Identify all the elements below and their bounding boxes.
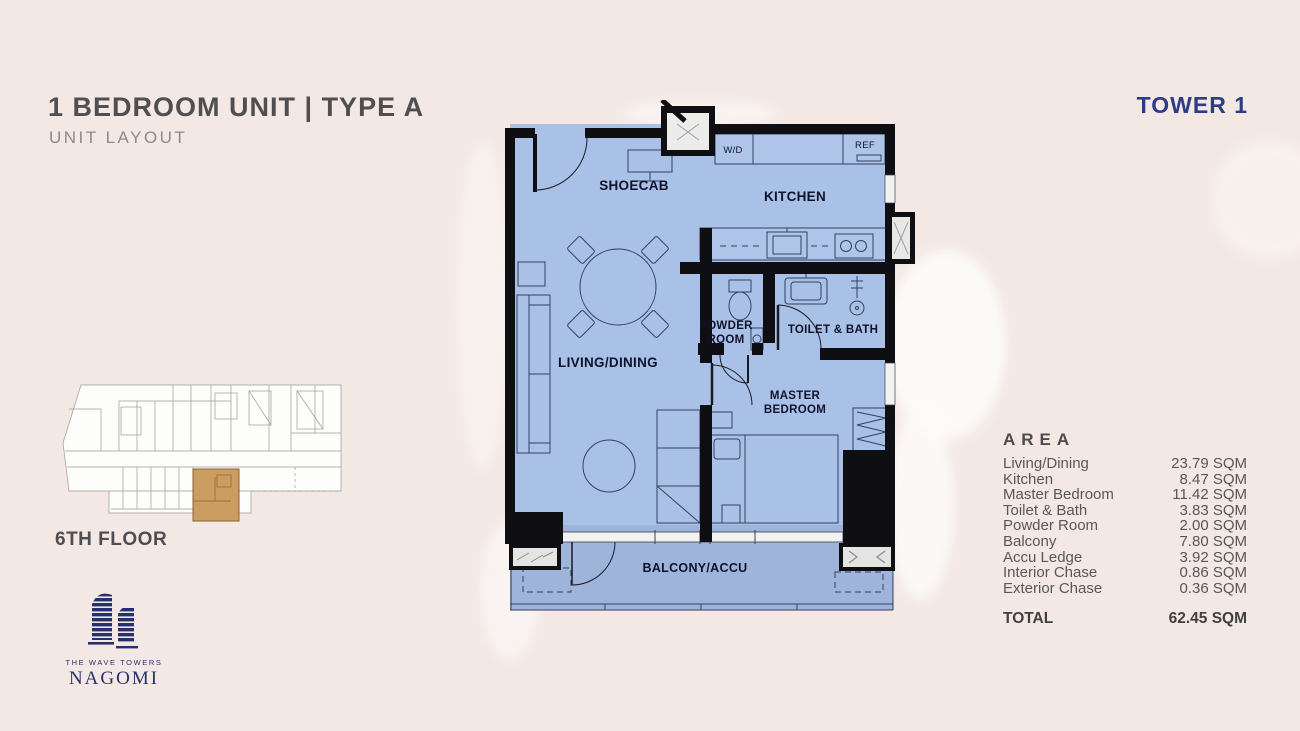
area-row-value: 0.36 SQM [1179,581,1247,597]
area-row: Accu Ledge3.92 SQM [1003,550,1247,566]
area-row: Interior Chase0.86 SQM [1003,565,1247,581]
area-row: Kitchen8.47 SQM [1003,472,1247,488]
area-row-value: 3.83 SQM [1179,503,1247,519]
floor-label: 6TH FLOOR [55,529,167,551]
area-total-label: TOTAL [1003,610,1053,628]
area-row-label: Accu Ledge [1003,550,1082,566]
room-label-shoecab: SHOECAB [599,178,669,193]
room-label-toilet-bath: TOILET & BATH [788,324,878,336]
area-row-value: 3.92 SQM [1179,550,1247,566]
area-row-label: Toilet & Bath [1003,503,1087,519]
room-label-kitchen: KITCHEN [764,189,826,204]
area-row: Powder Room2.00 SQM [1003,518,1247,534]
area-row-label: Balcony [1003,534,1056,550]
area-row-value: 2.00 SQM [1179,518,1247,534]
unit-floor-plan-drawing: SHOECAB KITCHEN W/D REF POWDERROOM TOILE… [505,100,915,615]
area-total-row: TOTAL62.45 SQM [1003,610,1247,628]
fixture-label-wd: W/D [723,145,742,156]
area-row: Balcony7.80 SQM [1003,534,1247,550]
room-label-living-dining: LIVING/DINING [558,355,658,370]
brochure-page: 1 BEDROOM UNIT | TYPE A UNIT LAYOUT TOWE… [0,0,1300,731]
area-row: Master Bedroom11.42 SQM [1003,487,1247,503]
exterior-chase [887,212,915,264]
area-row-label: Living/Dining [1003,456,1089,472]
area-row: Exterior Chase0.36 SQM [1003,581,1247,597]
unit-floor-plan: SHOECAB KITCHEN W/D REF POWDERROOM TOILE… [505,100,915,615]
area-row-label: Kitchen [1003,472,1053,488]
area-row-label: Exterior Chase [1003,581,1102,597]
accu-ledge-right [839,543,895,571]
entry-vestibule [661,100,715,156]
wave-towers-logo-icon [82,588,146,650]
area-row: Toilet & Bath3.83 SQM [1003,503,1247,519]
area-row-label: Interior Chase [1003,565,1097,581]
area-row: Living/Dining23.79 SQM [1003,456,1247,472]
page-title: 1 BEDROOM UNIT | TYPE A [48,92,424,123]
page-subtitle: UNIT LAYOUT [49,128,187,148]
area-table: AREA Living/Dining23.79 SQM Kitchen8.47 … [1003,430,1247,628]
brush-stroke [1210,140,1300,260]
area-row-value: 11.42 SQM [1172,487,1247,503]
brand-logo: THE WAVE TOWERS NAGOMI [54,588,174,680]
area-table-title: AREA [1003,430,1247,450]
area-row-value: 7.80 SQM [1179,534,1247,550]
tower-label: TOWER 1 [1137,92,1248,119]
room-label-balcony: BALCONY/ACCU [643,561,748,575]
logo-tagline: THE WAVE TOWERS [54,658,174,667]
floor-key-plan [53,381,345,531]
fixture-label-ref: REF [855,140,875,151]
area-total-value: 62.45 SQM [1169,610,1247,628]
area-row-value: 8.47 SQM [1179,472,1247,488]
area-row-value: 23.79 SQM [1171,456,1247,472]
area-row-label: Powder Room [1003,518,1098,534]
accu-ledge-left [509,544,561,570]
brush-stroke [455,140,510,470]
floor-key-plan-drawing [53,381,345,531]
area-row-value: 0.86 SQM [1179,565,1247,581]
logo-brand: NAGOMI [54,668,174,690]
area-row-label: Master Bedroom [1003,487,1114,503]
highlighted-unit [193,469,239,521]
